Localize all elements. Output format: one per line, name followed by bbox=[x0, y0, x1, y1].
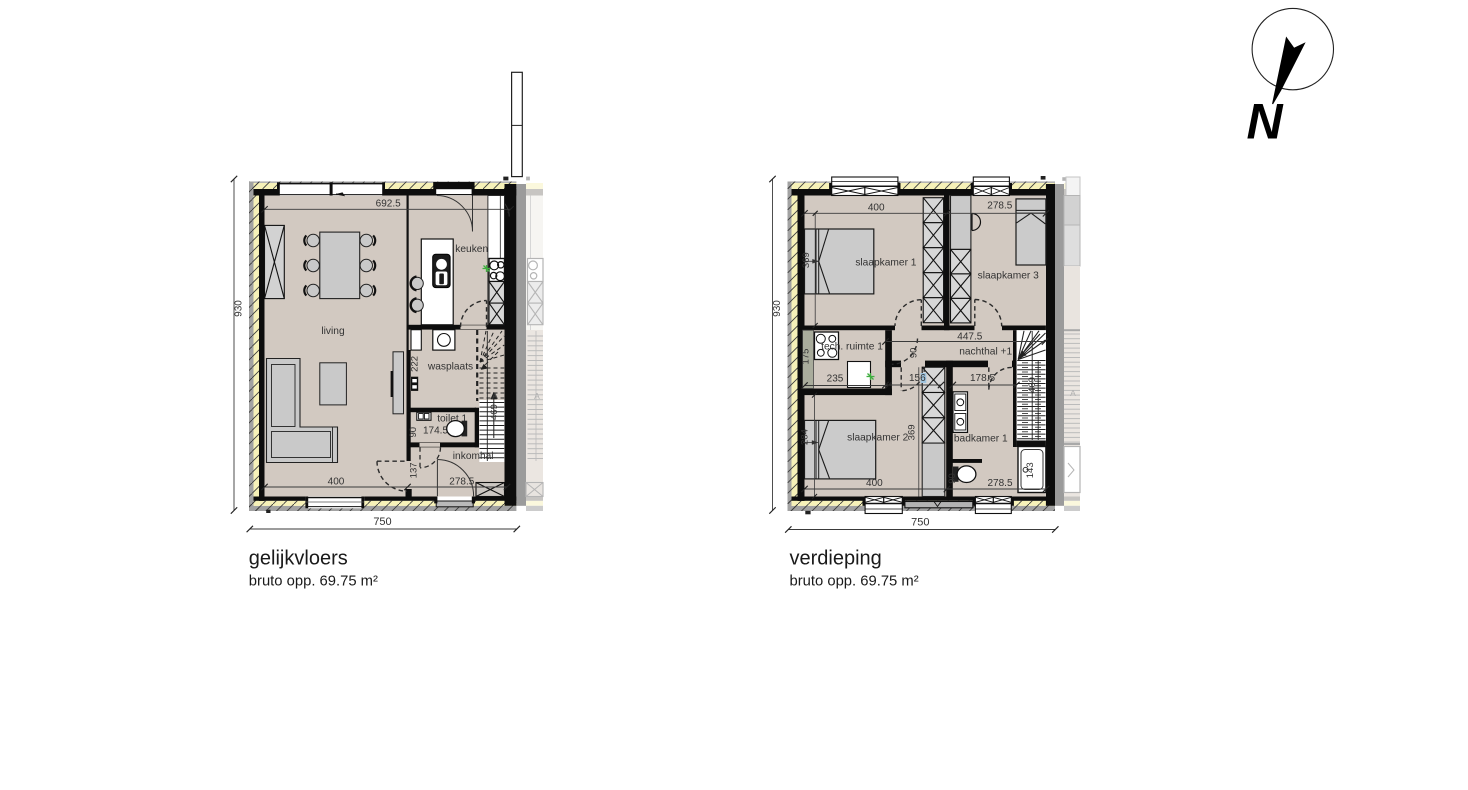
svg-text:A: A bbox=[534, 391, 540, 401]
svg-text:750: 750 bbox=[911, 517, 929, 529]
svg-text:222: 222 bbox=[410, 356, 421, 372]
svg-text:178.5: 178.5 bbox=[970, 373, 995, 384]
svg-text:137: 137 bbox=[408, 462, 419, 478]
svg-text:750: 750 bbox=[373, 516, 391, 528]
svg-text:156: 156 bbox=[909, 373, 926, 384]
svg-text:slaapkamer 3: slaapkamer 3 bbox=[978, 270, 1039, 281]
svg-text:278.5: 278.5 bbox=[987, 200, 1012, 211]
svg-text:slaapkamer 1: slaapkamer 1 bbox=[855, 257, 916, 268]
svg-text:400: 400 bbox=[868, 202, 885, 213]
svg-text:A: A bbox=[1070, 388, 1076, 398]
svg-text:90: 90 bbox=[408, 427, 419, 438]
svg-text:A: A bbox=[492, 391, 498, 401]
svg-text:verdieping: verdieping bbox=[790, 548, 882, 570]
svg-text:278.5: 278.5 bbox=[987, 478, 1012, 489]
svg-text:369: 369 bbox=[801, 252, 812, 268]
svg-text:174.5: 174.5 bbox=[423, 425, 448, 436]
svg-text:235: 235 bbox=[827, 374, 844, 385]
svg-text:keuken: keuken bbox=[455, 244, 488, 255]
svg-text:inkomhal: inkomhal bbox=[453, 451, 494, 462]
svg-text:284: 284 bbox=[800, 429, 811, 445]
svg-text:278.5: 278.5 bbox=[449, 476, 474, 487]
svg-text:N: N bbox=[1247, 94, 1284, 150]
svg-text:bruto opp. 69.75 m²: bruto opp. 69.75 m² bbox=[249, 573, 378, 589]
svg-text:400: 400 bbox=[328, 476, 345, 487]
svg-text:469: 469 bbox=[489, 404, 500, 420]
svg-text:nachthal +1: nachthal +1 bbox=[959, 347, 1012, 358]
svg-text:living: living bbox=[321, 326, 345, 337]
svg-text:wasplaats: wasplaats bbox=[427, 361, 473, 372]
svg-text:90: 90 bbox=[909, 348, 920, 359]
svg-text:400: 400 bbox=[866, 478, 883, 489]
svg-text:143: 143 bbox=[1025, 462, 1036, 478]
svg-text:369: 369 bbox=[906, 424, 917, 440]
svg-text:469: 469 bbox=[1027, 377, 1038, 393]
svg-text:447.5: 447.5 bbox=[957, 332, 982, 343]
svg-text:175: 175 bbox=[801, 349, 812, 365]
svg-text:gelijkvloers: gelijkvloers bbox=[249, 548, 348, 570]
svg-text:slaapkamer 2: slaapkamer 2 bbox=[847, 432, 908, 443]
svg-text:bruto opp. 69.75 m²: bruto opp. 69.75 m² bbox=[790, 573, 919, 589]
svg-text:692.5: 692.5 bbox=[376, 198, 401, 209]
svg-text:930: 930 bbox=[772, 300, 783, 317]
svg-text:90: 90 bbox=[947, 473, 958, 484]
svg-text:badkamer 1: badkamer 1 bbox=[954, 434, 1008, 445]
svg-text:930: 930 bbox=[234, 300, 245, 317]
svg-text:tech. ruimte 1: tech. ruimte 1 bbox=[821, 342, 883, 353]
